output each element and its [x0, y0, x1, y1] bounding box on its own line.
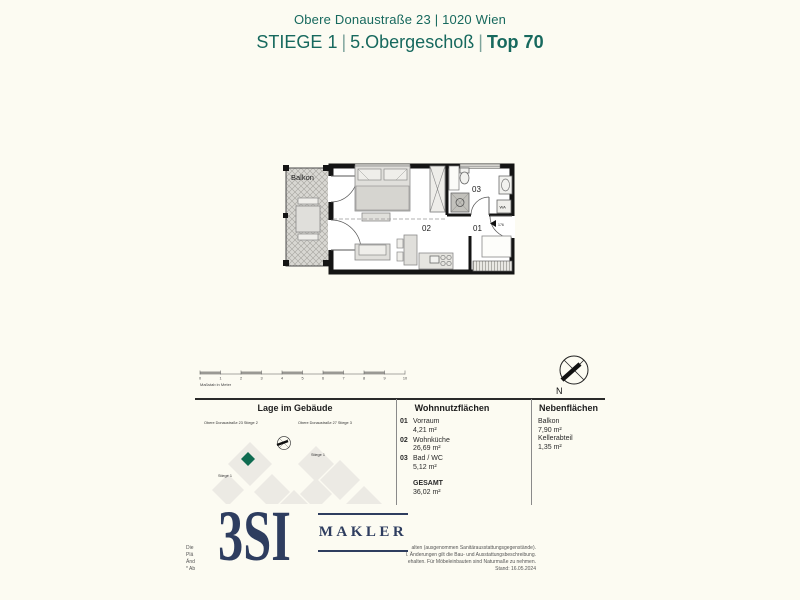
neben-item-area: 1,35 m²: [538, 444, 604, 453]
entrance-dimension: 176: [498, 223, 504, 227]
logo-makler-text: MAKLER: [318, 513, 408, 552]
toilet: [460, 172, 469, 184]
bed-bench: [362, 213, 390, 221]
scale-tick-label: 7: [342, 377, 344, 381]
scale-bar: 0 1 2 3 4 5 6 7 8 9 10 Maßstab in Meter: [198, 366, 410, 390]
room-label-03: 03: [472, 185, 481, 194]
bed: [355, 166, 410, 211]
neben-item-name: Balkon: [538, 418, 604, 427]
room-area: 4,21 m²: [413, 427, 528, 436]
header-top-number: Top 70: [487, 32, 544, 52]
lage-title: Lage im Gebäude: [195, 403, 395, 413]
logo-3si-text: 3SI: [218, 507, 291, 565]
wohnnutzflaechen-list: 01Vorraum 4,21 m² 02Wohnküche 26,69 m² 0…: [400, 418, 528, 497]
total-area: 36,02 m²: [413, 489, 528, 498]
scale-tick-label: 3: [260, 377, 262, 381]
disclaimer: alten (ausgenommen Sanitärausstattungsge…: [400, 545, 536, 573]
siteplan-compass: [277, 437, 291, 450]
nebenflaechen-title: Nebenflächen: [532, 403, 605, 413]
footer-left-fragments: Die Plä Änd * Ab: [186, 545, 210, 573]
room-label-02: 02: [422, 224, 431, 233]
room-row: 03Bad / WC: [400, 455, 528, 464]
balkon-label: Balkon: [291, 173, 314, 182]
balcony-post: [283, 165, 289, 171]
scale-caption: Maßstab in Meter: [200, 382, 232, 387]
room-area: 26,69 m²: [413, 445, 528, 454]
room-number: 01: [400, 418, 413, 427]
balcony-post: [323, 165, 329, 171]
balcony-table: [296, 206, 320, 232]
siteplan-label-stiege-right: Stiege 1: [311, 453, 325, 457]
sofa: [355, 244, 390, 260]
column-divider-2: [531, 399, 532, 505]
washing-machine: WA: [497, 200, 511, 213]
washbasin: [499, 176, 512, 194]
fineprint-fragment: * Ab: [186, 566, 210, 573]
vorraum-wardrobe: [473, 261, 512, 271]
room-number: 03: [400, 455, 413, 464]
room-number: 02: [400, 437, 413, 446]
balcony-bench: [298, 198, 318, 204]
disclaimer-date: Stand: 16.05.2024: [400, 566, 536, 573]
header-stiege: STIEGE 1: [256, 32, 337, 52]
scale-tick-label: 9: [383, 377, 385, 381]
siteplan-label-stiege-left: Stiege 1: [218, 474, 232, 478]
room-name: Wohnküche: [413, 437, 450, 444]
total-label: GESAMT: [413, 480, 528, 489]
compass: N: [549, 348, 597, 398]
total-block: GESAMT 36,02 m²: [413, 480, 528, 497]
fineprint-fragment: Änd: [186, 559, 210, 566]
balcony-bench: [298, 234, 318, 240]
siteplan-label-left-building: Obere Donaustraße 23 Stiege 2: [204, 421, 258, 425]
kitchen-sink: [430, 256, 439, 263]
compass-north-label: N: [556, 386, 563, 396]
scale-tick-label: 10: [403, 377, 407, 381]
shower: [451, 193, 469, 212]
disclaimer-line: l. Änderungen gilt die Bau- und Ausstatt…: [400, 552, 536, 559]
siteplan-label-right-building: Obere Donaustraße 27 Stiege 3: [298, 421, 352, 425]
column-divider-1: [396, 399, 397, 505]
scale-tick-label: 0: [199, 377, 201, 381]
scale-tick-label: 6: [322, 377, 324, 381]
balcony-post: [323, 260, 329, 266]
siteplan: Obere Donaustraße 23 Stiege 2 Obere Dona…: [198, 416, 390, 504]
nebenflaechen-list: Balkon 7,90 m² Kellerabteil 1,35 m²: [538, 418, 604, 452]
header-separator-1: |: [337, 32, 350, 52]
page: { "header": { "address": "Obere Donaustr…: [0, 0, 800, 600]
scale-tick-label: 2: [240, 377, 242, 381]
neben-item-area: 7,90 m²: [538, 427, 604, 436]
chair: [397, 239, 403, 248]
room-row: 02Wohnküche: [400, 437, 528, 446]
wardrobe: [430, 166, 445, 212]
header-address: Obere Donaustraße 23 | 1020 Wien: [0, 12, 800, 27]
balcony-post: [283, 260, 289, 266]
duct: [449, 166, 459, 190]
vorraum-closet: [482, 236, 511, 257]
siteplan-buildings: [212, 442, 382, 504]
fineprint-fragment: Die: [186, 545, 210, 552]
chair: [397, 252, 403, 261]
header-floor: 5.Obergeschoß: [350, 32, 474, 52]
room-name: Bad / WC: [413, 455, 443, 462]
header-separator-2: |: [474, 32, 487, 52]
fineprint-fragment: Plä: [186, 552, 210, 559]
disclaimer-line: ehalten. Für Möbeleinbauten sind Naturma…: [400, 559, 536, 566]
balcony: Balkon: [283, 165, 329, 266]
room-label-01: 01: [473, 224, 482, 233]
header-unit-line: STIEGE 1|5.Obergeschoß|Top 70: [0, 32, 800, 53]
scale-tick-label: 5: [301, 377, 303, 381]
scale-tick-label: 4: [281, 377, 283, 381]
room-area: 5,12 m²: [413, 464, 528, 473]
disclaimer-line: alten (ausgenommen Sanitärausstattungsge…: [400, 545, 536, 552]
section-divider: [195, 398, 605, 400]
washing-machine-label: WA: [500, 205, 507, 210]
floorplan: Balkon 176: [283, 162, 517, 278]
kitchen-counter: [419, 253, 453, 269]
wohnnutzflaechen-title: Wohnnutzflächen: [397, 403, 507, 413]
scale-tick-label: 8: [363, 377, 365, 381]
room-row: 01Vorraum: [400, 418, 528, 427]
room-name: Vorraum: [413, 418, 439, 425]
company-logo: 3SI MAKLER: [218, 505, 410, 567]
balcony-post: [283, 213, 288, 218]
scale-tick-label: 1: [219, 377, 221, 381]
compass-needle: [562, 364, 580, 380]
neben-item-name: Kellerabteil: [538, 435, 604, 444]
